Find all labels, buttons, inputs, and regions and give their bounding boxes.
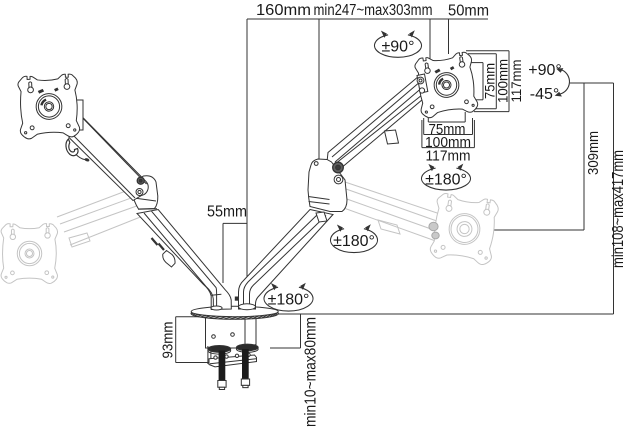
svg-text:117mm: 117mm: [509, 60, 524, 103]
svg-text:117mm: 117mm: [426, 149, 471, 165]
svg-text:±180°: ±180°: [268, 291, 310, 308]
svg-text:±90°: ±90°: [382, 38, 415, 55]
svg-text:min10~max80mm: min10~max80mm: [303, 317, 320, 427]
svg-text:±180°: ±180°: [425, 171, 467, 188]
svg-text:50mm: 50mm: [448, 3, 489, 20]
svg-text:min108~max417mm: min108~max417mm: [610, 150, 626, 268]
svg-text:+90°: +90°: [528, 62, 562, 79]
svg-text:160mm: 160mm: [256, 2, 311, 19]
svg-text:-45°: -45°: [530, 86, 560, 103]
svg-text:min247~max303mm: min247~max303mm: [314, 2, 433, 19]
svg-text:±180°: ±180°: [333, 233, 375, 250]
svg-text:309mm: 309mm: [585, 131, 602, 175]
svg-text:55mm: 55mm: [207, 204, 247, 221]
svg-text:93mm: 93mm: [160, 322, 177, 359]
